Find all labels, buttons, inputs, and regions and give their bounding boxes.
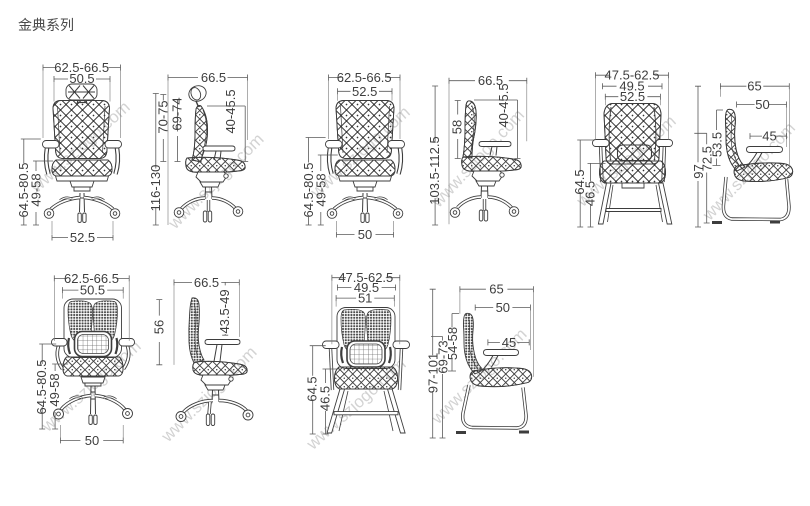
svg-text:66.5: 66.5 [201,70,226,85]
svg-text:58: 58 [450,120,465,134]
svg-text:46.5: 46.5 [318,386,333,411]
svg-text:49-58: 49-58 [47,373,62,406]
svg-text:49-58: 49-58 [29,173,44,206]
svg-text:45: 45 [502,335,516,350]
svg-text:69-74: 69-74 [170,97,185,130]
svg-text:62.5-66.5: 62.5-66.5 [337,70,392,85]
svg-text:52.5: 52.5 [620,89,645,104]
svg-text:53.5: 53.5 [709,132,724,157]
svg-text:116-130: 116-130 [148,165,163,212]
svg-text:66.5: 66.5 [194,275,219,290]
svg-text:54-58: 54-58 [445,327,460,360]
svg-text:56: 56 [151,320,166,334]
svg-text:50.5: 50.5 [69,71,94,86]
svg-text:45: 45 [762,129,776,144]
svg-text:103.5-112.5: 103.5-112.5 [427,136,442,204]
svg-text:40-45.5: 40-45.5 [496,83,511,127]
svg-text:52.5: 52.5 [70,230,95,245]
svg-text:50: 50 [85,433,99,448]
svg-text:46.5: 46.5 [583,181,598,206]
svg-text:50: 50 [755,97,769,112]
svg-text:52.5: 52.5 [352,84,377,99]
svg-text:70-75: 70-75 [155,100,170,133]
svg-text:金典系列: 金典系列 [18,17,74,33]
svg-text:50: 50 [496,300,510,315]
svg-text:65: 65 [747,79,761,94]
svg-text:50.5: 50.5 [80,283,105,298]
svg-text:49-58: 49-58 [313,173,328,206]
svg-text:www.szjogo.com: www.szjogo.com [157,343,261,447]
svg-text:40-45.5: 40-45.5 [223,89,238,133]
svg-text:50: 50 [358,227,372,242]
svg-text:65: 65 [489,282,503,297]
svg-text:51: 51 [358,291,372,306]
svg-text:43.5-49: 43.5-49 [217,289,232,333]
